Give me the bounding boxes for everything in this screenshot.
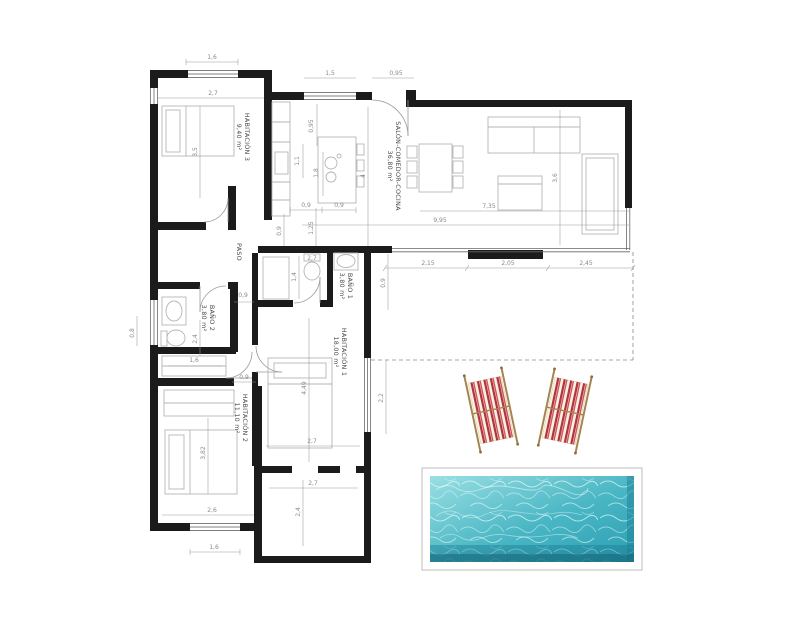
dimension-label: 2,2 (378, 393, 385, 403)
sink-bano1 (334, 253, 358, 270)
dimension-label: 3,82 (200, 446, 207, 460)
dimension-label: 1,25 (308, 221, 315, 235)
window (304, 93, 356, 100)
dimension-label: 3,6 (552, 173, 559, 183)
dimension-label: 1,4 (291, 272, 298, 282)
dimension-label: 2,7 (308, 480, 318, 487)
dimension-label: 1,6 (189, 357, 199, 364)
dimension-label: 2,7 (307, 438, 317, 445)
dimension-label: 0,9 (276, 226, 283, 236)
door-hab3 (204, 198, 228, 222)
room-label-bano2: BAÑO 23,80 m² (200, 305, 217, 332)
toilet-bano2 (161, 330, 185, 346)
room-label-salon: SALÓN-COMEDOR-COCINA36,80 m² (386, 121, 403, 211)
room-label-hab3: HABITACIÓN 39,40 m² (235, 113, 252, 161)
dimension-label: 0,95 (389, 70, 403, 77)
dimension-label: 2,05 (501, 260, 515, 267)
dimension-label: 7,35 (482, 203, 496, 210)
window (188, 71, 238, 78)
swimming-pool (422, 468, 642, 570)
coffee-table (498, 176, 542, 210)
dimension-label: 0,9 (301, 202, 311, 209)
dimension-label: 4,49 (301, 381, 308, 395)
window (151, 300, 158, 345)
closet-hab2 (164, 390, 234, 416)
dimension-label: 2,15 (421, 260, 435, 267)
dimension-label: 0,9 (239, 374, 249, 381)
dimension-label: 2,7 (208, 90, 218, 97)
shower (263, 257, 289, 299)
room-label-bano1: BAÑO 13,80 m² (338, 273, 355, 300)
dimension-label: 2,4 (295, 507, 302, 517)
kitchen-counter (272, 102, 290, 216)
dimension-label: 1,1 (294, 156, 301, 166)
dimension-label: 0,9 (238, 292, 248, 299)
door-hab1 (256, 346, 282, 372)
sofa (488, 117, 580, 153)
room-label-hab1: HABITACIÓN 118,00 m² (332, 328, 349, 376)
room-label-hab2: HABITACIÓN 211,10 m² (233, 394, 250, 442)
chaise (582, 154, 618, 234)
dimension-label: 0,9 (334, 202, 344, 209)
sink-bano2 (162, 297, 186, 325)
dimension-label: 0,8 (129, 328, 136, 338)
dimension-label: 1,8 (313, 168, 320, 178)
floor-plan-canvas: 1,62,71,50,953,50,951,11,840,90,97,359,9… (0, 0, 800, 640)
dimension-label: 0,95 (308, 119, 315, 133)
dimension-label: 4 (360, 174, 367, 178)
windows (151, 71, 631, 531)
window (190, 524, 240, 531)
kitchen-island (318, 137, 364, 203)
window (365, 358, 371, 432)
dimension-label: 2,45 (579, 260, 593, 267)
dimension-label: 1,5 (325, 70, 335, 77)
dimension-label: 0,9 (380, 278, 387, 288)
dimension-label: 2,4 (192, 334, 199, 344)
window (151, 88, 158, 104)
dimension-label: 2,7 (307, 255, 317, 262)
deck-chair-right (537, 367, 594, 455)
deck-chair-left (463, 366, 520, 454)
room-label-paso: PASO (235, 243, 243, 261)
dimension-label: 2,6 (207, 507, 217, 514)
dimension-label: 1,6 (209, 544, 219, 551)
floor-plan-page: 1,62,71,50,953,50,951,11,840,90,97,359,9… (0, 0, 800, 640)
dimension-label: 3,5 (192, 147, 199, 157)
bed-hab2 (165, 430, 237, 494)
dining-table (407, 144, 463, 192)
dimension-label: 9,95 (433, 217, 447, 224)
dimension-label: 1,6 (207, 54, 217, 61)
